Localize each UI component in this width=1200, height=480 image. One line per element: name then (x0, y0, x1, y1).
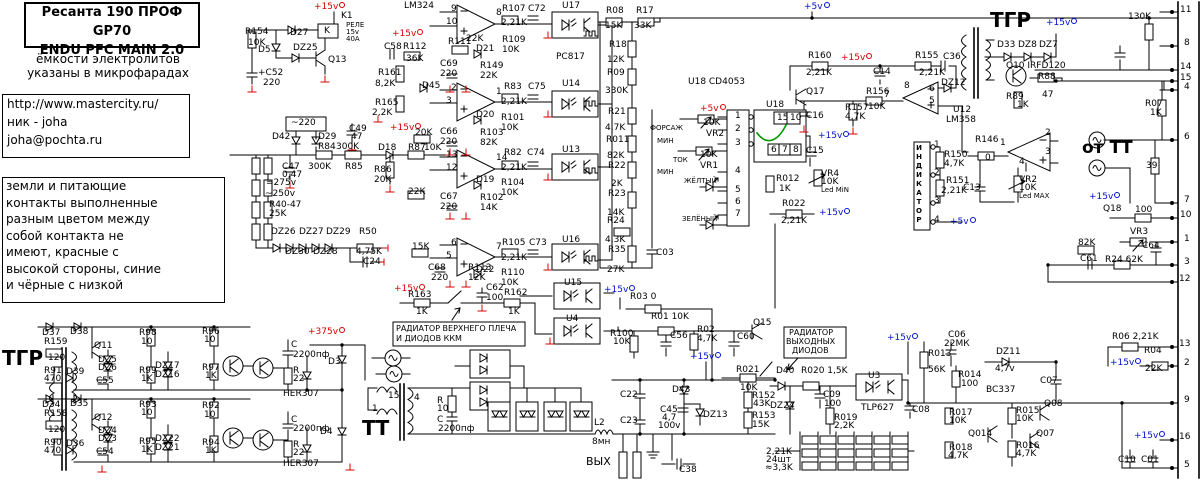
schem-label: +15v (841, 53, 872, 63)
schem-label: C22 (620, 391, 638, 400)
schem-label: 5 (1184, 461, 1190, 470)
schem-label: +5v (950, 217, 976, 227)
schem-label: R21 (608, 108, 626, 117)
schem-label: D4 (320, 428, 333, 437)
schem-label: 10K (703, 119, 720, 128)
schem-label: =275v (266, 179, 296, 188)
schem-label: 12 (1179, 275, 1190, 284)
schem-label: ТГР (990, 10, 1031, 30)
schem-label: R110 (501, 269, 524, 278)
schem-label: 22K (1145, 365, 1162, 374)
schem-label: U16 (562, 236, 580, 245)
schem-label: 470 (44, 375, 61, 384)
schem-label: 8 (904, 82, 910, 91)
schem-label: HER307 (283, 390, 319, 399)
schem-label: 3 (735, 139, 741, 148)
schem-label: 4 (735, 167, 741, 176)
schem-label: 4,3K (605, 236, 625, 245)
schem-label: Led MiN (821, 187, 849, 194)
schem-label: 1 (1000, 139, 1006, 148)
schem-label: 4 (1019, 158, 1025, 167)
schem-label: от ТТ (1082, 140, 1133, 157)
schem-label: C74 (527, 149, 545, 158)
ground-colors-note-text: земли и питающие контакты выполненные ра… (6, 178, 224, 294)
schem-label: 10K (949, 417, 966, 426)
schem-label: 2,2K (834, 422, 854, 431)
schem-label: DZ16 (155, 371, 180, 380)
schem-label: R18 (609, 41, 627, 50)
schem-label: 300K (336, 143, 359, 152)
schem-label: K1 (341, 12, 353, 21)
schem-label: 220 (440, 138, 457, 147)
schem-label: ТОК (673, 157, 688, 164)
schem-label: R50 (359, 228, 377, 237)
schem-label: C36 (943, 53, 961, 62)
schem-label: 10K (502, 46, 519, 55)
schem-label: DZ3 (98, 435, 117, 444)
schem-label: 39 (1146, 162, 1157, 171)
schem-label: 1 (735, 112, 741, 121)
schem-label: R85 (345, 163, 363, 172)
schematic-title: Ресанта 190 ПРОФ GP70 ENDU PFC MAIN 2.0 (24, 2, 200, 48)
schem-label: 10 (437, 405, 448, 414)
ground-colors-note-box: земли и питающие контакты выполненные ра… (2, 177, 225, 303)
schem-label: R102 (480, 194, 503, 203)
schem-label: D40 (776, 367, 794, 376)
schem-label: 56K (928, 366, 945, 375)
schem-label: DZ13 (703, 411, 728, 420)
schem-label: 4 (414, 394, 420, 403)
schem-label: 10K (424, 144, 441, 153)
schem-label: DZ24 (770, 402, 795, 411)
schem-label: C58 (384, 43, 402, 52)
schem-label: 82K (1078, 239, 1095, 248)
schem-label: U15 (564, 279, 582, 288)
schem-label: R154 (245, 28, 268, 37)
capacitor-units-note: ёмкости электролитов указаны в микрофара… (18, 52, 198, 80)
schem-label: R160 (808, 52, 831, 61)
author-contact-text: http://www.mastercity.ru/ ник - joha joh… (7, 95, 189, 149)
schem-label: R101 (501, 114, 524, 123)
schem-label: 12 (446, 164, 457, 173)
schem-label: 15 (388, 392, 399, 401)
schem-label: 47 (1042, 91, 1053, 100)
schem-label: R158 (44, 410, 67, 419)
schem-label: K (324, 27, 330, 36)
schem-label: LM324 (404, 2, 434, 11)
schem-label: РАДИАТОР ВЕРХНЕГО ПЛЕЧА (396, 325, 516, 333)
schem-label: 12K (607, 56, 624, 65)
schem-label: 130K (1128, 13, 1151, 22)
schem-label: ДИОДОВ (792, 347, 829, 355)
schem-label: D35 (70, 400, 88, 409)
schem-label: C61 (1080, 255, 1098, 264)
schem-label: ТТ (362, 418, 389, 438)
schem-label: C08 (912, 406, 930, 415)
schem-label: U4 (566, 315, 578, 324)
schem-label: 10 (141, 409, 152, 418)
schem-label: HER307 (283, 460, 319, 469)
schem-label: 25K (269, 210, 286, 219)
schem-label: C62 (486, 284, 504, 293)
schem-label: ИНДИКАТОР (915, 144, 922, 225)
schem-label: R104 (501, 179, 524, 188)
schem-label: 2,21K (501, 164, 527, 173)
schem-label: ФОРСАЖ (650, 125, 683, 132)
schem-label: R149 (480, 62, 503, 71)
schem-label: +5v (804, 2, 830, 12)
schem-label: 1K (779, 185, 791, 194)
author-contact-box: http://www.mastercity.ru/ ник - joha joh… (2, 94, 190, 158)
schem-label: 10 (141, 338, 152, 347)
schem-label: ВЫХ (586, 456, 611, 467)
schem-label: 2 (1045, 129, 1051, 138)
schem-label: 1K (508, 308, 520, 317)
schem-label: 15K (412, 243, 429, 252)
schem-label: R151 (946, 177, 969, 186)
schem-label: 10K (613, 338, 630, 347)
schem-label: 2,2K (372, 109, 392, 118)
schem-label: 47 (351, 133, 362, 142)
schem-label: D39 (66, 368, 84, 377)
schem-label: 20K (374, 176, 391, 185)
schem-label: C03 (656, 249, 674, 258)
schem-label: 1K (141, 446, 153, 455)
schem-label: R03 0 (630, 293, 656, 302)
schem-label: D18 (378, 144, 396, 153)
schem-label: 4,7K (697, 335, 717, 344)
schem-label: R88 (1038, 73, 1056, 82)
schem-label: U18 CD4053 (688, 78, 745, 87)
schem-label: 20K (415, 129, 432, 138)
schem-label: C07 (1040, 377, 1058, 386)
schem-label: R84 (318, 143, 336, 152)
schem-label: C69 (440, 60, 458, 69)
schem-label: D27 (290, 29, 308, 38)
schem-label: R162 (504, 289, 527, 298)
schem-label: 22K (466, 35, 483, 44)
schem-label: R24 62K (1105, 256, 1143, 265)
schem-label: R165 (375, 99, 398, 108)
schem-label: DZ25 (293, 44, 318, 53)
schem-label: R155 (915, 52, 938, 61)
schem-label: C55 (96, 377, 114, 386)
schem-label: 220 (263, 79, 280, 88)
schem-label: DZ29 (326, 228, 351, 237)
schem-label: 43K (753, 400, 770, 409)
schem-label: 7 (782, 146, 788, 155)
schem-label: R011 (606, 136, 629, 145)
schem-label: 2200пф (293, 351, 329, 360)
schem-label: 10K (700, 151, 717, 160)
schem-label: 2,21K (501, 19, 527, 28)
schem-label: Q12 (94, 414, 113, 423)
schem-label: 4,7v (995, 365, 1015, 374)
schem-label: 6 (451, 239, 457, 248)
schem-label: D5 (258, 46, 271, 55)
schem-label: 15 (777, 114, 788, 123)
schem-label: 12K (468, 274, 485, 283)
schem-label: C54 (96, 448, 114, 457)
schem-label: 220 (440, 70, 457, 79)
schem-label: R23 (608, 190, 626, 199)
schem-label: D21 (476, 45, 494, 54)
schem-label: ~220 (291, 119, 316, 128)
schem-label: C68 (428, 264, 446, 273)
schem-label: R107 (502, 5, 525, 14)
schem-label: C66 (440, 128, 458, 137)
schem-label: +15v (819, 208, 850, 218)
schem-label: 120 (48, 426, 65, 435)
schem-label: BC337 (986, 386, 1015, 395)
schem-label: Q11 (94, 342, 113, 351)
schem-label: 10K (501, 189, 518, 198)
schem-label: R112 (403, 43, 426, 52)
schem-label: 15K (752, 421, 769, 430)
schem-label: R163 (408, 291, 431, 300)
schem-label: 8мн (592, 438, 610, 447)
schem-label: 8 (1184, 39, 1190, 48)
schem-label: DZ7 (1039, 41, 1058, 50)
schem-label: DZ30 (285, 248, 310, 257)
schem-label: Q08 (1044, 400, 1063, 409)
schem-label: D45 (422, 82, 440, 91)
schem-label: C64 (1142, 242, 1160, 251)
schem-label: Q15 (753, 319, 772, 328)
schematic-board: Ресанта 190 ПРОФ GP70 ENDU PFC MAIN 2.0 … (0, 0, 1200, 480)
schem-label: 5 (446, 252, 452, 261)
schem-label: 4,75K (356, 248, 382, 257)
schem-label: ТГР (2, 348, 43, 368)
schem-label: РАДИАТОР (789, 329, 833, 337)
schem-label: D29 (318, 133, 336, 142)
schem-label: 7 (884, 91, 890, 100)
schem-label: 1K (205, 447, 217, 456)
schem-label: LM358 (946, 116, 976, 125)
schem-label: 1 (934, 141, 940, 150)
schem-label: 2 (735, 125, 741, 134)
schem-label: 8 (496, 9, 502, 18)
schem-label: 22МК (944, 340, 970, 349)
schem-label: C14 (873, 68, 891, 77)
schem-label: 2 (1184, 359, 1190, 368)
schem-label: 1K (1150, 109, 1162, 118)
schem-label: U14 (562, 80, 580, 89)
schem-label: C24 (363, 258, 381, 267)
schem-label: DZ6 (98, 364, 117, 373)
schem-label: 10 (204, 411, 215, 420)
schem-label: 10 (1180, 211, 1191, 220)
schem-label: Q13 (328, 56, 347, 65)
schem-label: 10 (446, 18, 457, 27)
schem-label: ЖЁЛТЫЙ (684, 178, 717, 185)
schem-label: U13 (562, 146, 580, 155)
schem-label: МИН (657, 169, 674, 176)
schem-label: ~250v (265, 190, 295, 199)
schem-label: 2,21K (941, 187, 967, 196)
schem-label: D42 (272, 133, 290, 142)
schem-label: 1K (1017, 101, 1029, 110)
schem-label: R01 10K (651, 313, 689, 322)
schem-label: 4 (1184, 83, 1190, 92)
schem-label: C16 (806, 112, 824, 121)
schem-label: ВЫХОДНЫХ (786, 338, 835, 346)
schem-label: 8,2K (375, 80, 395, 89)
schem-label: 40А (346, 36, 360, 43)
schem-label: 1 (372, 405, 378, 414)
schem-label: Led MAX (1019, 193, 1049, 200)
schem-label: Q17 (806, 88, 825, 97)
schem-label: 120 (48, 354, 65, 363)
schem-label: 4,7K (605, 124, 625, 133)
schem-label: 3 (934, 197, 940, 206)
schem-label: +15v (1089, 192, 1120, 202)
schem-label: D3 (328, 358, 341, 367)
schem-label: D20 (476, 111, 494, 120)
schem-label: 4,7K (1016, 450, 1036, 459)
schem-label: 22 (293, 449, 304, 458)
schem-label: 2,21K (501, 254, 527, 263)
schem-label: 9 (451, 5, 457, 14)
schem-label: C60 (737, 333, 755, 342)
schem-label: 2200пф (438, 425, 474, 434)
schem-label: 11 (1180, 6, 1191, 15)
schem-label: МИН (657, 138, 674, 145)
schem-label: 15K (605, 22, 622, 31)
schem-label: R22 (608, 162, 626, 171)
schem-label: 100 (961, 380, 978, 389)
schem-label: 5 (735, 186, 741, 195)
schem-label: DZ11 (996, 348, 1021, 357)
schem-label: R08 (606, 7, 624, 16)
schem-label: U12 (953, 106, 971, 115)
schem-label: C72 (528, 5, 546, 14)
schem-label: +15v (690, 352, 721, 362)
schem-label: 1 (496, 88, 502, 97)
schem-label: 2,21K (919, 69, 945, 78)
schem-label: 7 (735, 210, 741, 219)
schem-label: 36K (406, 55, 423, 64)
schem-label: D19 (476, 176, 494, 185)
schem-label: +C52 (258, 69, 283, 78)
schem-label: 4,7K (944, 160, 964, 169)
schem-label: R012 (776, 175, 799, 184)
schem-label: R020 1,5K (801, 367, 848, 376)
schem-label: 470 (44, 447, 61, 456)
schem-label: R109 (502, 36, 525, 45)
schem-label: L2 (594, 419, 605, 428)
schem-label: 1K (205, 372, 217, 381)
schem-label: 4,7K (948, 452, 968, 461)
schem-label: DZ21 (155, 444, 180, 453)
schem-label: DZ27 (299, 228, 324, 237)
schem-label: R161 (378, 69, 401, 78)
schem-label: 2,21K (806, 69, 832, 78)
schem-label: R022 (782, 200, 805, 209)
schem-label: +15v (818, 131, 849, 141)
schem-label: U17 (562, 2, 580, 11)
schem-label: 22K (408, 188, 425, 197)
schem-label: R09 (607, 69, 625, 78)
schem-label: 3 (446, 97, 452, 106)
schem-label: R83 (504, 83, 522, 92)
schem-label: DZ12 (941, 79, 966, 88)
schem-label: +15v (392, 29, 423, 39)
schem-label: C56 (670, 332, 688, 341)
schem-label: U3 (868, 372, 880, 381)
schem-label: 0 (985, 154, 991, 163)
schem-label: C15 (806, 147, 824, 156)
schem-label: C38 (679, 466, 697, 475)
schem-label: 1K (141, 375, 153, 384)
schem-label: 3 (1045, 148, 1051, 157)
schem-label: 2K (611, 180, 623, 189)
schem-label: C23 (620, 417, 638, 426)
schem-label: 100 (1135, 206, 1152, 215)
schem-label: 6 (735, 198, 741, 207)
schem-label: 100v (658, 422, 681, 431)
schem-label: DZ26 (271, 228, 296, 237)
schem-label: R35 (608, 246, 626, 255)
schem-label: C73 (529, 239, 547, 248)
schem-label: 5 (929, 97, 935, 106)
schem-label: D38 (70, 328, 88, 337)
schem-label: 100 (824, 400, 841, 409)
schem-label: 22 (293, 375, 304, 384)
schem-label: C10 (1118, 456, 1136, 465)
schem-label: 10K (1016, 415, 1033, 424)
schem-label: 10K (501, 124, 518, 133)
schem-label: R04 (1144, 347, 1162, 356)
schem-label: R86 (374, 166, 392, 175)
schem-label: 330K (605, 87, 628, 96)
schem-label: D33 (997, 41, 1015, 50)
schem-label: Q10 IRFD120 (1006, 62, 1066, 71)
schem-label: 13 (446, 151, 457, 160)
schem-label: 10 (204, 336, 215, 345)
schem-label: R06 2,21K (1112, 333, 1159, 342)
schem-label: 1K (416, 308, 428, 317)
schem-label: 7 (1184, 196, 1190, 205)
schem-label: 6 (771, 146, 777, 155)
schem-label: R013 (928, 350, 951, 359)
schem-label: Q18 (1103, 205, 1122, 214)
schem-label: VR3 (1130, 228, 1148, 237)
schem-label: 300K (308, 163, 331, 172)
schem-label: 22K (480, 72, 497, 81)
schem-label: C67 (440, 193, 458, 202)
schem-label: 6 (929, 85, 935, 94)
schem-label: 14K (480, 204, 497, 213)
schem-label: +15v (1110, 358, 1141, 368)
schem-label: 220 (440, 203, 457, 212)
schem-label: DZ28 (313, 248, 338, 257)
schem-label: U18 (766, 101, 784, 110)
schem-label: ЗЕЛЁНЫЙ (682, 216, 717, 223)
schem-label: 82K (607, 152, 624, 161)
schem-label: 27K (607, 266, 624, 275)
schem-label: R105 (502, 239, 525, 248)
schem-label: R103 (480, 129, 503, 138)
schem-label: VR2 (706, 130, 724, 139)
schem-label: +15v (887, 333, 918, 343)
schem-label: 33K (634, 22, 651, 31)
schem-label: C (291, 341, 297, 350)
schem-label: +15v (1046, 18, 1077, 28)
schem-label: R113 (468, 264, 491, 273)
schem-label: 6 (1184, 133, 1190, 142)
schem-label: 10 (790, 114, 801, 123)
